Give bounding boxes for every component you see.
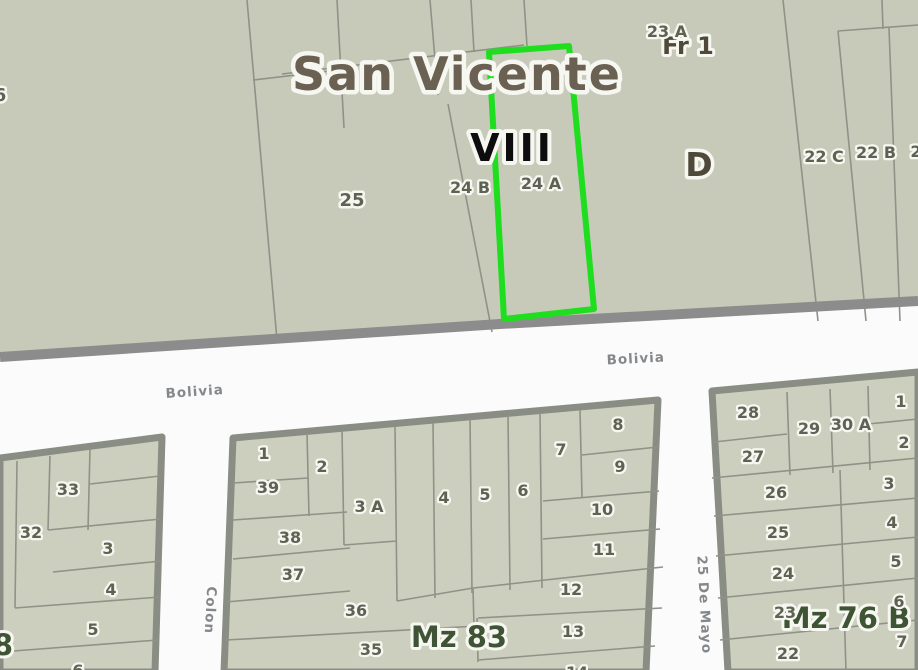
parcel-label: 37 (282, 565, 304, 584)
region-label: San Vicente (292, 47, 622, 101)
parcel-label: 3 (883, 474, 894, 493)
street-label-bolivia-right: Bolivia (606, 349, 665, 368)
parcel-label-23a: 23 A (647, 22, 688, 41)
parcel-label: 2 (898, 433, 909, 452)
parcel-label: 4 (105, 580, 116, 599)
parcel-label: 38 (279, 528, 301, 547)
parcel-label: 6 (72, 661, 83, 670)
parcel-label: 4 (886, 513, 897, 532)
parcel-label: 23 (774, 603, 796, 622)
parcel-label: 30 A (831, 415, 872, 434)
parcel-label: 1 (895, 392, 906, 411)
parcel-label: 6 (517, 481, 528, 500)
mz-label-83: Mz 83 (411, 620, 507, 654)
cadastral-map-canvas[interactable]: San Vicente VIII D Fr 1 23 A 25 24 B 24 … (0, 0, 918, 670)
parcel-label: 13 (562, 622, 584, 641)
parcel-label-24a: 24 A (521, 174, 562, 193)
map-viewport[interactable]: San Vicente VIII D Fr 1 23 A 25 24 B 24 … (0, 0, 918, 670)
parcel-label: 3 A (354, 497, 384, 516)
parcel-label-25: 25 (339, 190, 364, 211)
zone-label: D (685, 145, 712, 184)
parcel-label-22c: 22 C (804, 147, 844, 166)
parcel-label: 6 (893, 592, 904, 611)
mz-label-76b: Mz 76 B (782, 601, 910, 635)
parcel-label-22b: 22 B (856, 143, 896, 162)
parcel-label: 4 (438, 488, 449, 507)
parcel-label: 26 (765, 483, 787, 502)
parcel-label: 39 (257, 478, 279, 497)
parcel-label-edge-right: 2 (910, 142, 918, 161)
parcel-label-24b: 24 B (450, 178, 490, 197)
parcel-label-edge-left: 6 (0, 85, 6, 106)
parcel-label: 7 (896, 632, 907, 651)
parcel-label: 36 (345, 601, 367, 620)
parcel-label: 7 (555, 440, 566, 459)
parcel-label: 3 (102, 539, 113, 558)
parcel-label: 14 (566, 663, 588, 670)
parcel-label: 10 (591, 500, 613, 519)
parcel-label: 12 (560, 580, 582, 599)
parcel-label: 2 (316, 457, 327, 476)
parcel-label: 33 (57, 480, 79, 499)
parcel-label: 5 (890, 552, 901, 571)
parcel-label: 8 (612, 415, 623, 434)
parcel-label: 5 (87, 620, 98, 639)
parcel-label: 1 (258, 444, 269, 463)
mz-label-left-partial: 8 (0, 628, 13, 662)
parcel-label: 5 (479, 485, 490, 504)
block-left[interactable] (0, 437, 162, 670)
parcel-label: 22 (777, 644, 799, 663)
parcel-label: 24 (772, 564, 794, 583)
parcel-label: 28 (737, 403, 759, 422)
parcel-label: 35 (360, 640, 382, 659)
parcel-label: 27 (742, 447, 764, 466)
parcel-label: 32 (20, 523, 42, 542)
section-label: VIII (470, 126, 554, 170)
parcel-label: 9 (614, 457, 625, 476)
street-label-colon: Colon (201, 586, 219, 634)
parcel-label: 25 (767, 523, 789, 542)
parcel-label: 11 (593, 540, 615, 559)
parcel-label: 29 (798, 419, 820, 438)
